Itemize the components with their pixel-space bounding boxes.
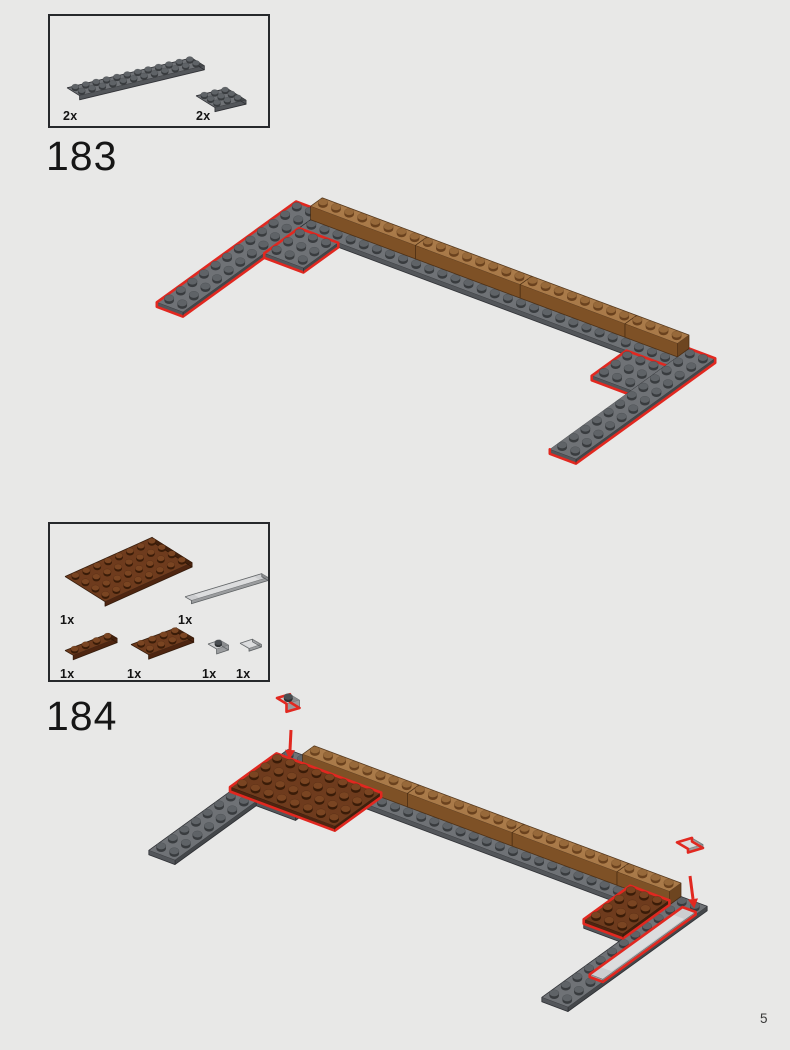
page-number: 5 — [760, 1011, 768, 1026]
part-quantity-label: 1x — [236, 667, 251, 681]
part-quantity-label: 1x — [60, 667, 75, 681]
step-184-assembly-diagram — [140, 688, 790, 1048]
part-quantity-label: 1x — [127, 667, 142, 681]
part-quantity-label: 1x — [202, 667, 217, 681]
step-number-184: 184 — [46, 696, 117, 737]
part-quantity-label: 1x — [60, 613, 75, 627]
part-quantity-label: 1x — [178, 613, 193, 627]
instruction-page: 2x 2x 183 1x 1x 1x 1x 1x 1x 184 5 — [0, 0, 790, 1050]
step-183-assembly-diagram — [140, 185, 785, 515]
part-quantity-label: 2x — [63, 109, 78, 123]
part-quantity-label: 2x — [196, 109, 211, 123]
parts-box-184-diagram — [50, 524, 268, 680]
parts-box-184: 1x 1x 1x 1x 1x 1x — [48, 522, 270, 682]
parts-box-183-diagram — [50, 16, 268, 126]
step-number-183: 183 — [46, 136, 117, 177]
parts-box-183: 2x 2x — [48, 14, 270, 128]
